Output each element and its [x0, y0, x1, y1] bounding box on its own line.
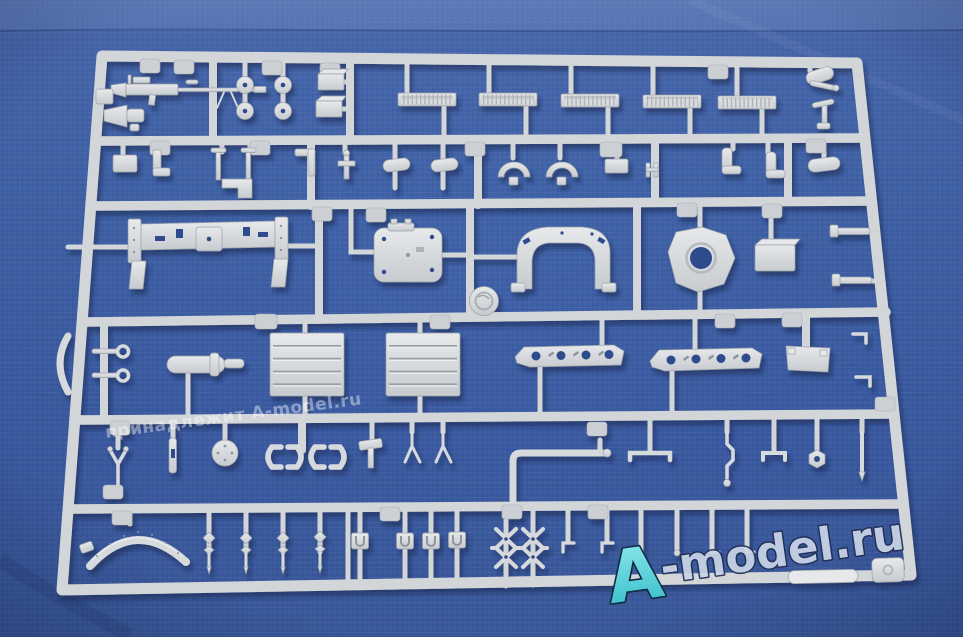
storage-box-part — [755, 239, 800, 271]
disc-part — [212, 440, 238, 466]
sprue-photo: принадлежит A-model.ru A -model.ru — [0, 0, 963, 637]
hatch-panel-part — [374, 219, 442, 282]
clevis-pin-part — [169, 438, 177, 473]
photo-canvas: принадлежит A-model.ru A -model.ru — [0, 0, 963, 637]
edge-box-part — [96, 89, 113, 104]
flat-box-part — [605, 159, 628, 173]
ring-plate-part — [668, 227, 735, 292]
runner-row5 — [70, 504, 899, 509]
injection-gate-disc — [470, 287, 499, 316]
channel-block-parts — [352, 532, 466, 549]
small-box-part — [113, 155, 137, 172]
flat-plate-part — [786, 346, 830, 372]
